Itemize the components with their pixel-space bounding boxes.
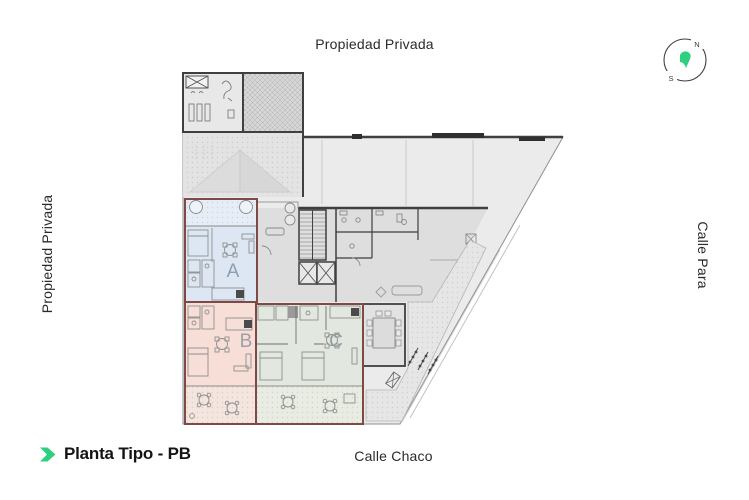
brand-chevron-icon — [39, 446, 57, 463]
elevator-shafts — [299, 262, 335, 284]
compass: N S — [664, 38, 706, 83]
compass-north-label: N — [694, 40, 699, 49]
dining-room — [363, 304, 405, 366]
shaft-x-box — [186, 76, 208, 88]
stairs — [299, 210, 326, 260]
unit-b-label: B — [240, 331, 253, 352]
north-arrow-icon — [680, 51, 691, 68]
page: Propiedad Privada Propiedad Privada Call… — [0, 0, 749, 500]
unit-b: B — [185, 302, 256, 424]
unit-c-label: C — [329, 331, 343, 352]
plan-title-text: Planta Tipo - PB — [64, 444, 191, 464]
unit-c: C — [256, 304, 363, 424]
unit-a-label: A — [227, 261, 240, 282]
plan-title: Planta Tipo - PB — [39, 444, 191, 464]
compass-south-label: S — [668, 74, 673, 83]
unit-a: A — [185, 199, 257, 302]
floor-plan: A B — [0, 0, 749, 500]
amenities-block — [183, 73, 303, 197]
